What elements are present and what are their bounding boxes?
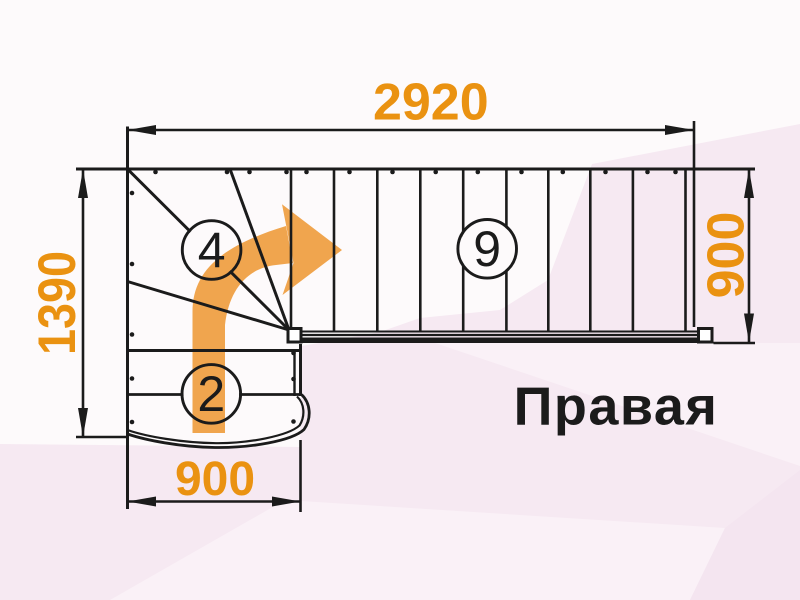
svg-text:4: 4 [198, 223, 226, 279]
svg-text:900: 900 [698, 212, 756, 299]
svg-text:900: 900 [175, 453, 255, 506]
svg-text:2920: 2920 [373, 74, 489, 132]
svg-text:2: 2 [197, 366, 225, 422]
svg-text:Правая: Правая [514, 377, 719, 437]
svg-text:1390: 1390 [28, 251, 87, 355]
svg-text:9: 9 [473, 221, 501, 277]
